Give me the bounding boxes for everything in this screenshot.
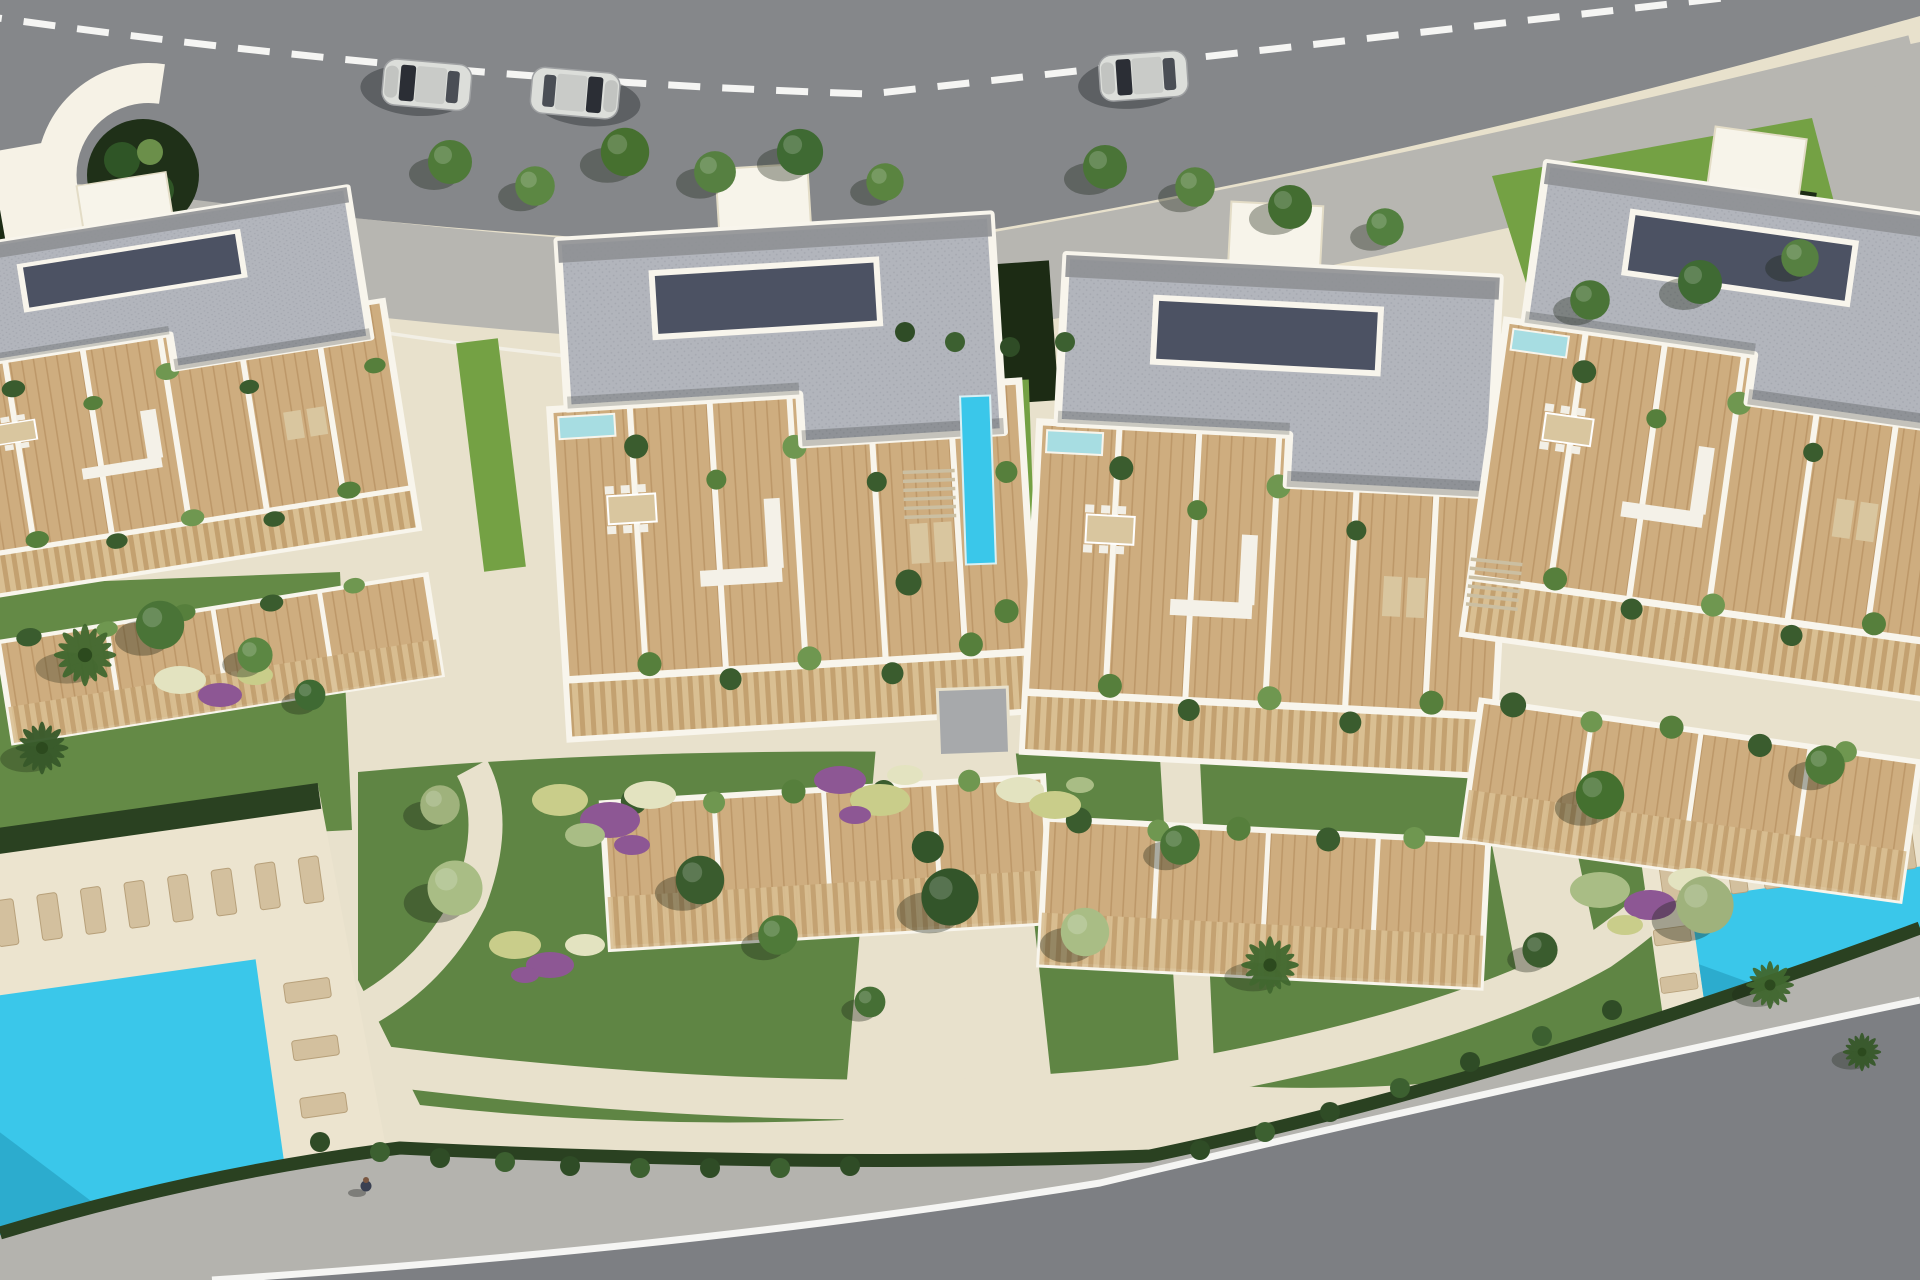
site-plan-canvas (0, 0, 1920, 1280)
lap-pool (960, 396, 996, 565)
building-3 (1011, 192, 1521, 988)
aerial-site-render (0, 0, 1920, 1280)
paver-square (937, 687, 1009, 755)
